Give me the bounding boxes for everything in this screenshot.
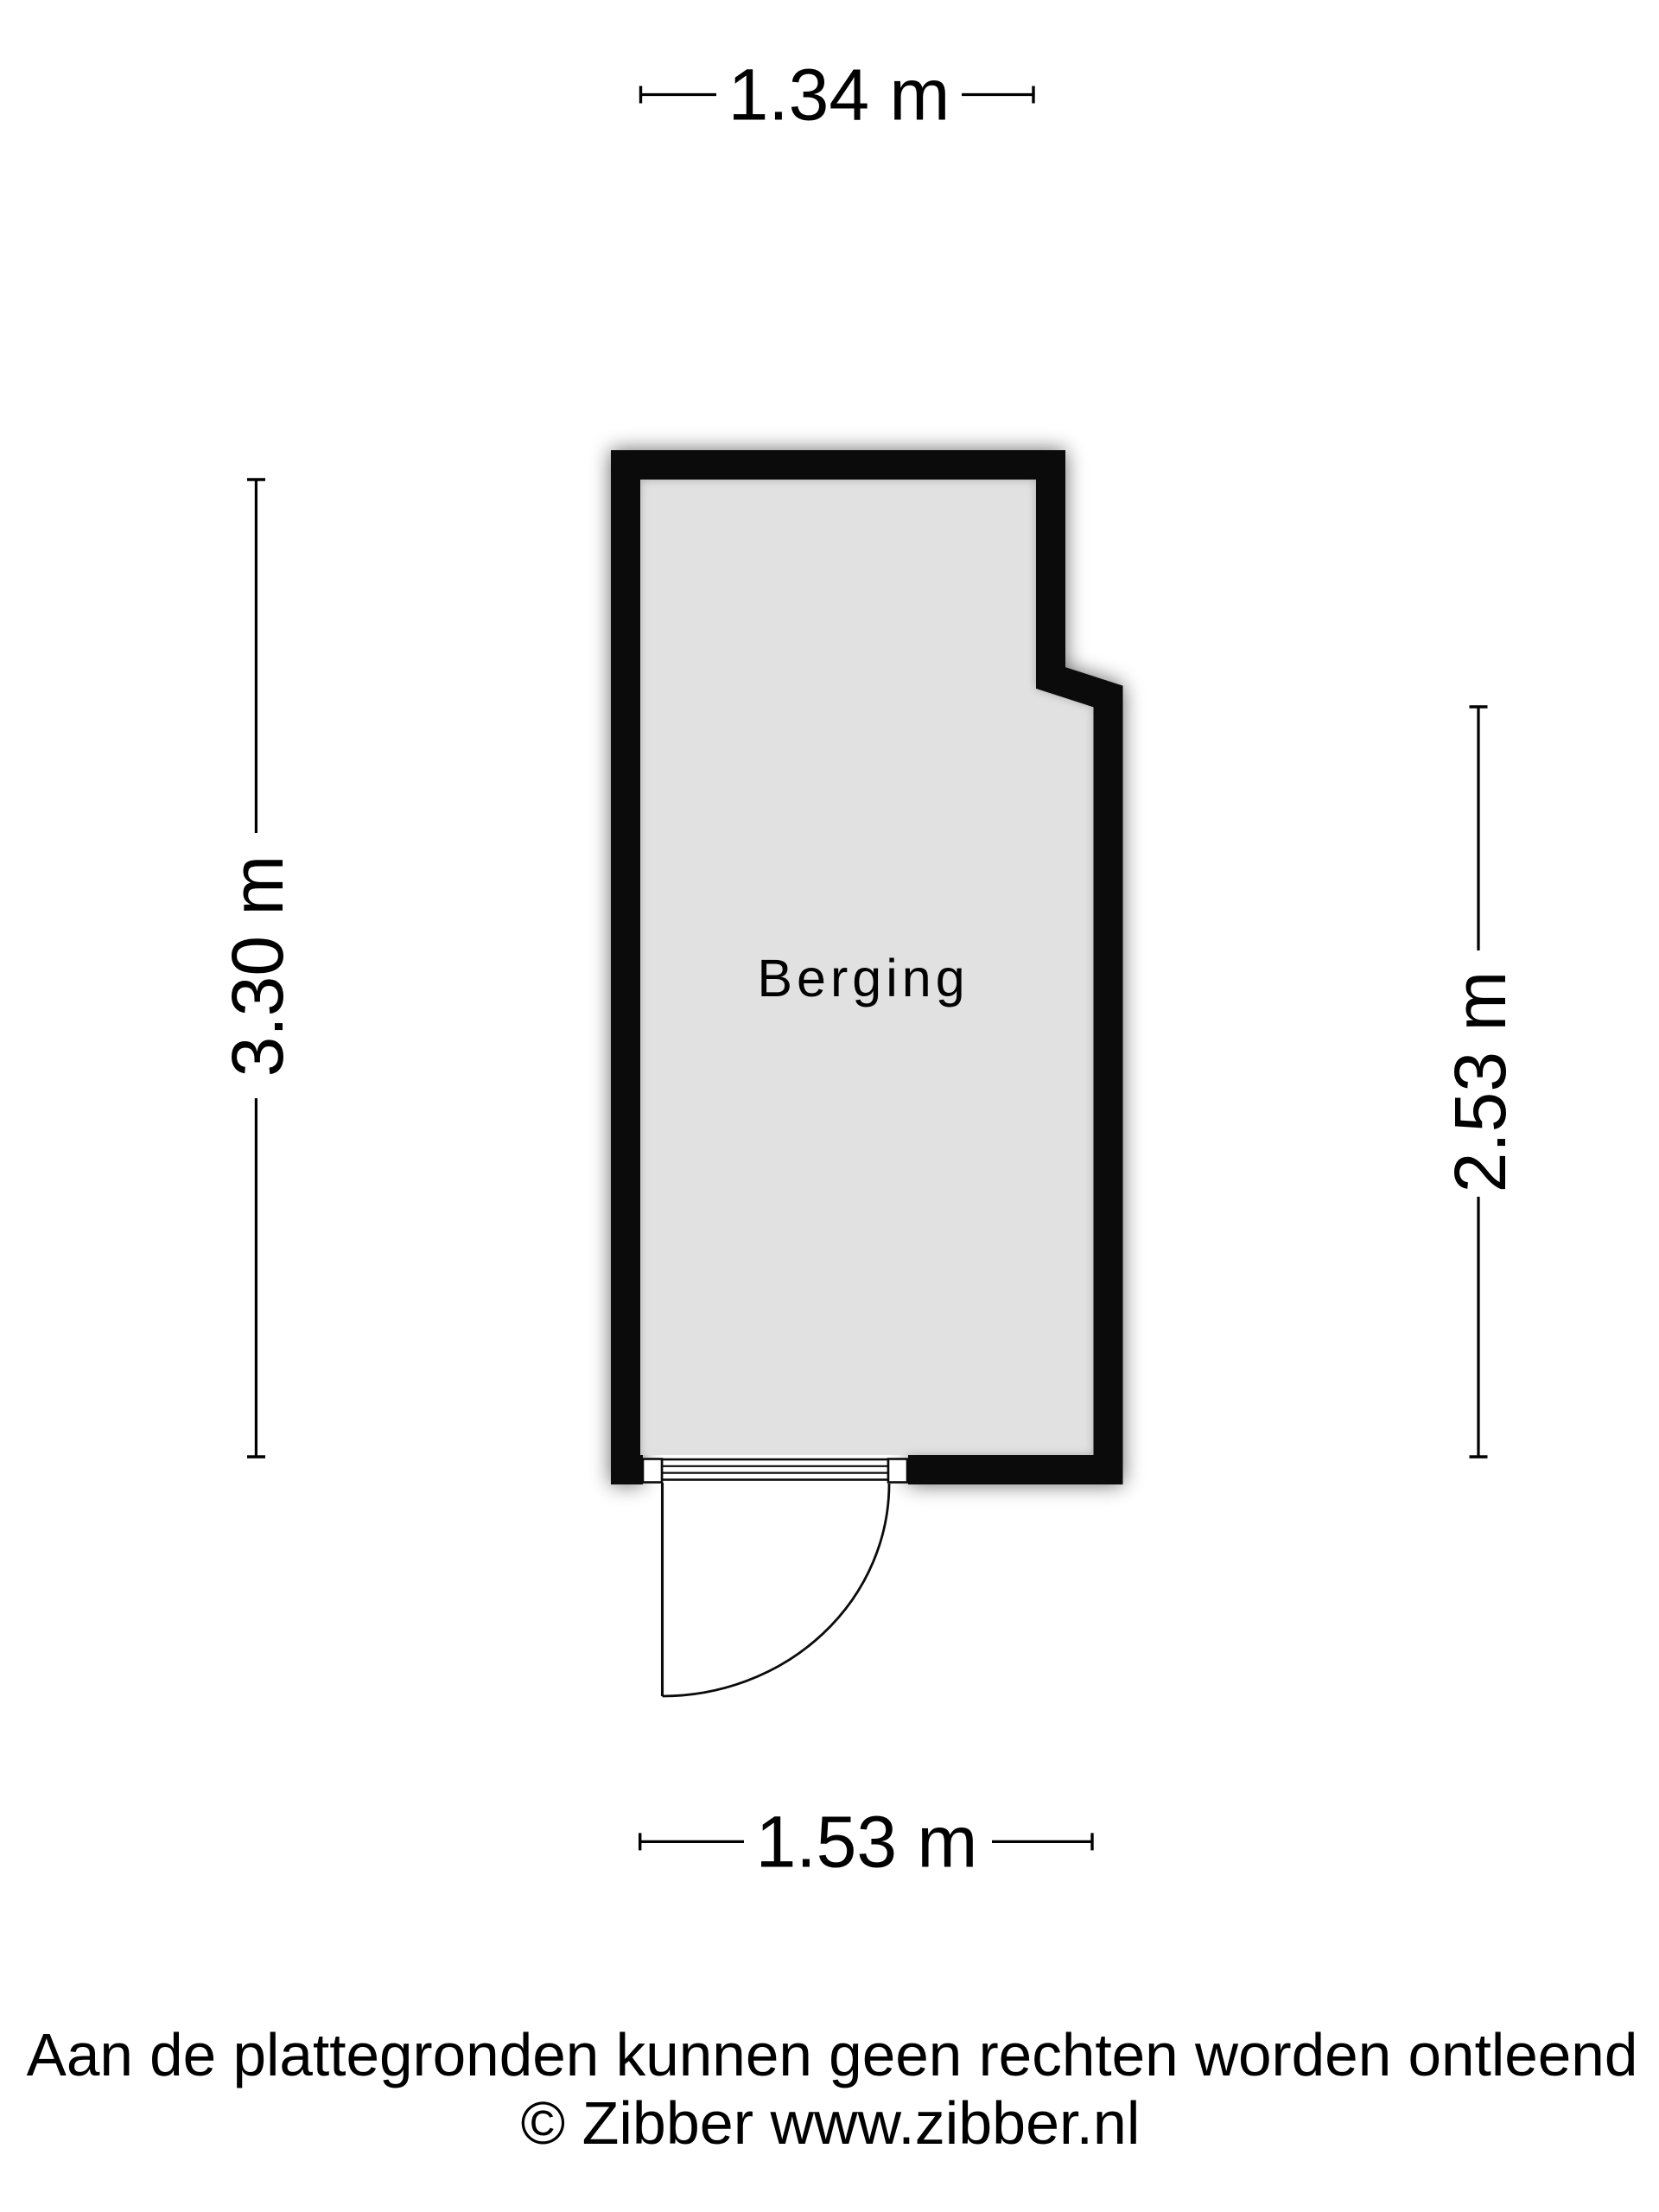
svg-text:© Zibber www.zibber.nl: © Zibber www.zibber.nl — [521, 2089, 1141, 2157]
svg-text:2.53 m: 2.53 m — [1440, 971, 1521, 1193]
svg-text:Aan de plattegronden kunnen ge: Aan de plattegronden kunnen geen rechten… — [27, 2021, 1638, 2088]
svg-text:Berging: Berging — [757, 949, 969, 1007]
svg-text:3.30 m: 3.30 m — [217, 855, 298, 1077]
svg-text:1.34 m: 1.34 m — [728, 54, 950, 135]
svg-text:1.53 m: 1.53 m — [756, 1801, 978, 1882]
